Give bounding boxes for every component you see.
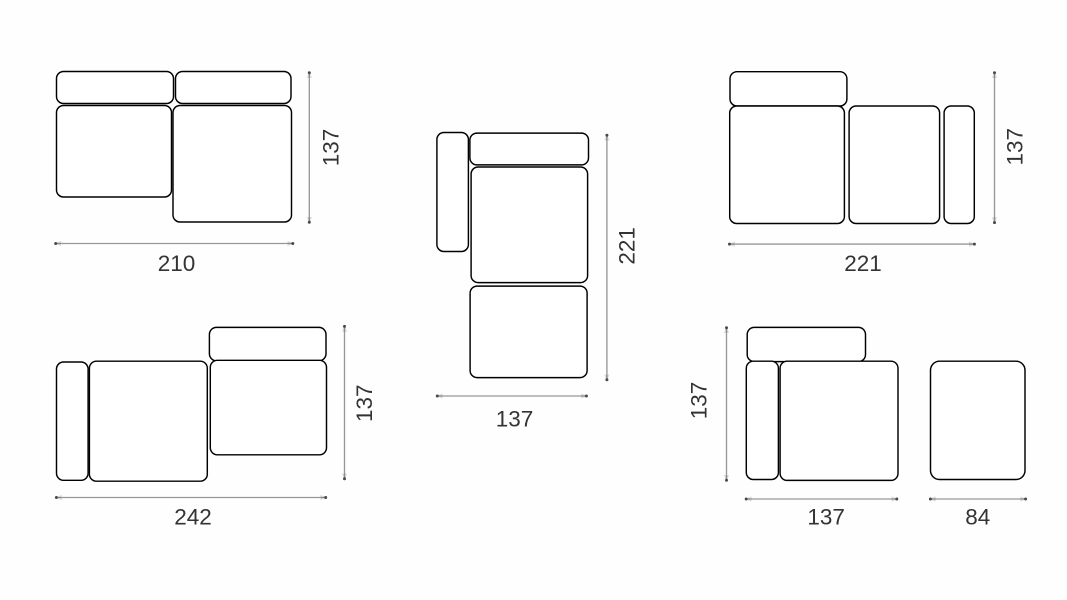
- svg-text:84: 84: [965, 505, 990, 530]
- svg-text:137: 137: [319, 129, 344, 167]
- svg-text:137: 137: [496, 407, 534, 432]
- svg-text:221: 221: [844, 251, 882, 276]
- svg-text:221: 221: [614, 227, 639, 265]
- svg-text:137: 137: [686, 382, 711, 420]
- svg-text:137: 137: [1003, 128, 1028, 166]
- svg-text:242: 242: [174, 505, 212, 530]
- svg-text:137: 137: [807, 505, 845, 530]
- svg-text:210: 210: [158, 251, 196, 276]
- svg-text:137: 137: [352, 384, 377, 422]
